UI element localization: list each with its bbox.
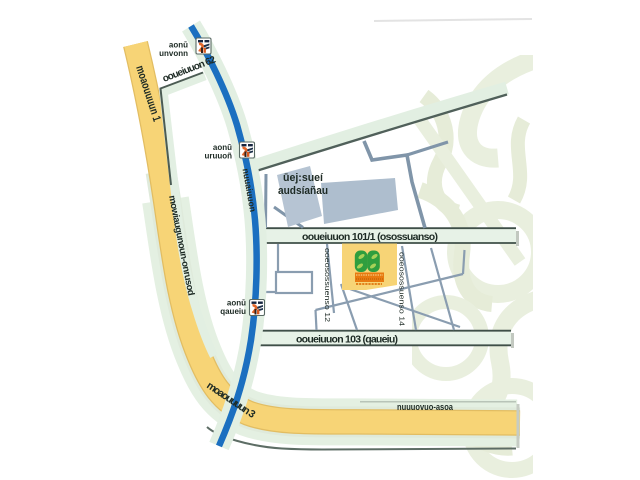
svg-text:ooueiuuon 101/1 (osossuanso): ooueiuuon 101/1 (osossuanso) <box>302 231 438 243</box>
svg-text:ūej:sueí: ūej:sueí <box>283 172 324 184</box>
svg-text:unvonn: unvonn <box>159 49 188 58</box>
svg-text:qaueiu: qaueiu <box>220 307 246 316</box>
svg-text:ooeosossuenso 14: ooeosossuenso 14 <box>398 252 407 326</box>
svg-text:uruuoñ: uruuoñ <box>204 152 232 161</box>
svg-text:nuuuovuo-asoa: nuuuovuo-asoa <box>397 402 454 413</box>
svg-text:ooeosossuenso 12: ooeosossuenso 12 <box>323 248 332 322</box>
svg-text:audsíañau: audsíañau <box>278 185 328 197</box>
svg-text:ooueiuuon 103 (qaueiu): ooueiuuon 103 (qaueiu) <box>296 334 398 346</box>
